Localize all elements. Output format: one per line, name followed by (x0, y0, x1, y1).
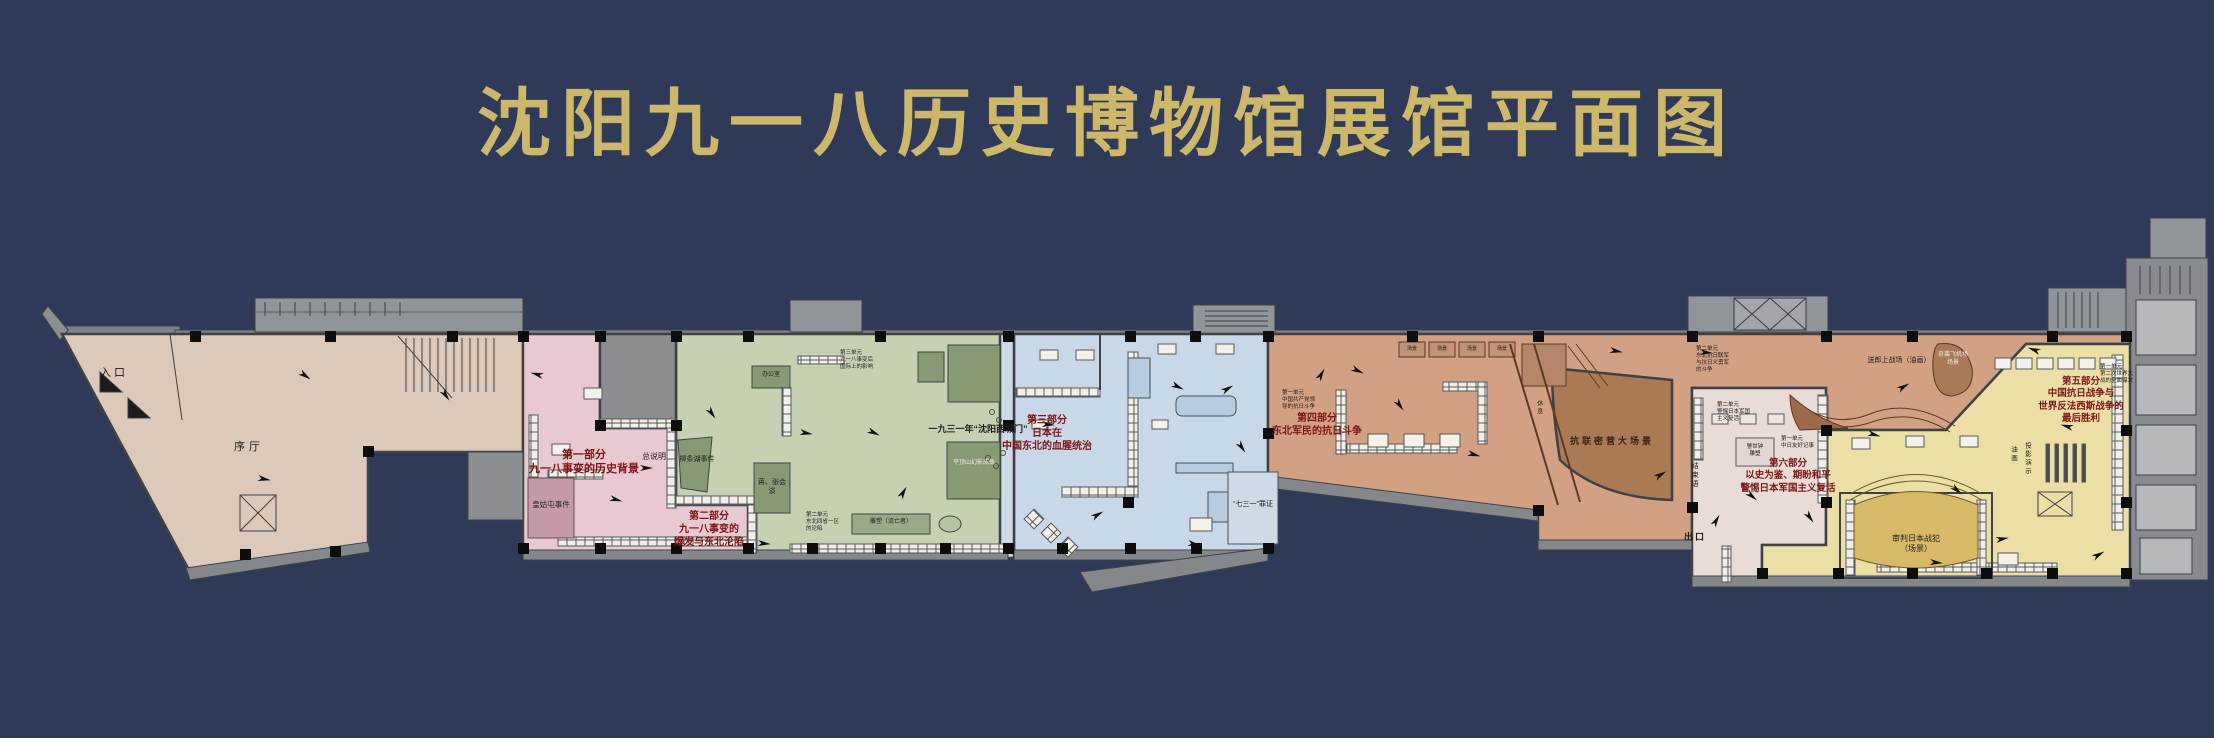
gray-notch (600, 334, 676, 428)
part6-title: 第六部分 以史为鉴、期盼和平 警惕日本军国主义复活 (1718, 458, 1858, 495)
meeting-label: 蒋、张会谈 (755, 478, 789, 496)
prologue-hall-label: 序厅 (222, 440, 276, 454)
projection-label: 投影演示 (2022, 442, 2030, 476)
kanglian-scene-label: 抗联密营大场景 (1552, 436, 1672, 448)
rest-label: 休息 (1534, 400, 1542, 416)
floor-plan-canvas: 沈阳九一八历史博物馆展馆平面图 (0, 0, 2214, 738)
oil-painting-label: 油画 (2008, 446, 2016, 463)
unit2-part4-label: 第二单元 东北抗日联军 与抗日义勇军 的斗争 (1696, 346, 1738, 375)
unit1-part5-label: 第一单元 第二次世界大 战的全面爆发 (2100, 364, 2140, 385)
scene-box-label-3: 场景 (1459, 346, 1485, 353)
huanggutun-label: 皇姑屯事件 (529, 500, 573, 510)
scene-box-label-4: 场景 (1489, 346, 1515, 353)
unit2-part2-label: 第二单元 东北四省一区 的沦陷 (806, 512, 846, 533)
floorplan-svg (0, 0, 2214, 738)
bell-sculpture-label: 警世钟 雕塑 (1738, 444, 1772, 458)
part4-title: 第四部分 东北军民的抗日斗争 (1256, 412, 1378, 438)
entrance-label: 入口 (92, 366, 136, 380)
unit3-part2-label: 第三单元 九一八事变后 国际上的影响 (840, 350, 880, 371)
airfield-scene-label: 奇袭飞机场 场景 (1934, 352, 1972, 368)
liutiaohu-label: 柳条湖事件 (678, 455, 716, 464)
sculpture-exile-label: 雕塑（流亡者） (855, 519, 927, 527)
unit1-part4-label: 第一单元 中国共产党领 导的抗日斗争 (1282, 390, 1326, 411)
outer-walls (42, 218, 2206, 344)
pingdingshan-label: 平顶山幻影成像 (948, 460, 1000, 468)
part2-title: 第二部分 九一八事变的 爆发与东北沦陷 (650, 510, 768, 549)
part3-title: 第三部分 日本在 中国东北的血腥统治 (988, 414, 1106, 453)
trial-scene-label: 审判日本战犯 （场景） (1872, 534, 1960, 555)
unit1-part6-label: 第一单元 中日友好记事 (1781, 436, 1821, 450)
exit-label: 出口 (1680, 532, 1710, 544)
escalator-icon (1734, 298, 1806, 330)
scene-box-label-2: 场景 (1429, 346, 1455, 353)
evidence-731-label: “七三一”罪证 (1229, 500, 1277, 509)
office-label: 办公室 (752, 372, 790, 380)
unit2-part6-label: 第二单元 警惕日本军国 主义复活 (1717, 402, 1759, 423)
part1-title: 第一部分 九一八事变的历史背景 (508, 448, 660, 477)
scene-box-label-1: 场景 (1399, 346, 1425, 353)
conclusion-label: 结束语 (1690, 462, 1699, 489)
